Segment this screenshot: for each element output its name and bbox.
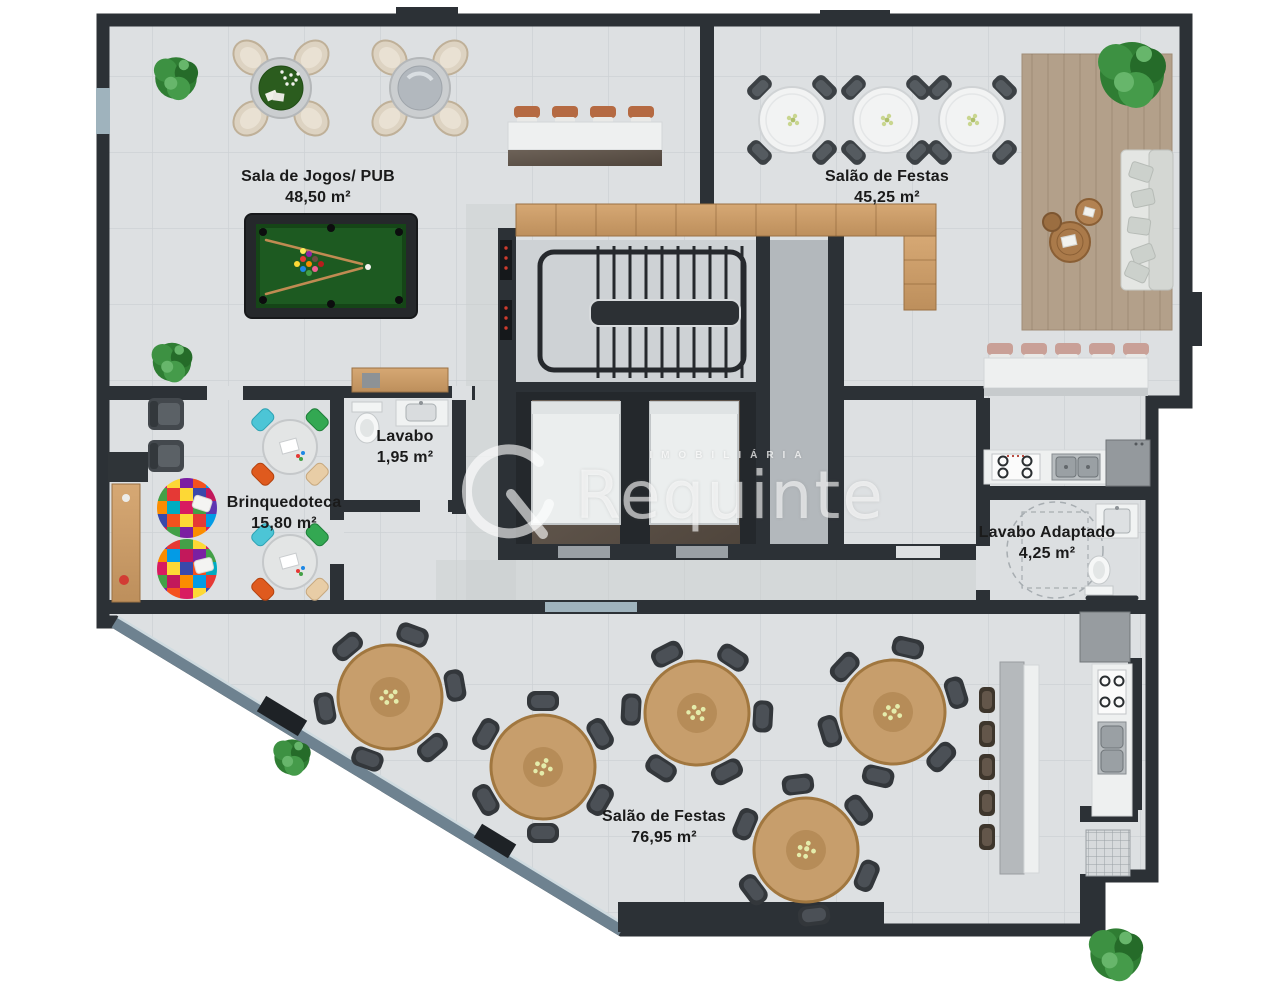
cooktop-icon xyxy=(1098,670,1126,714)
counter-stool xyxy=(979,790,995,816)
armchair-icon xyxy=(148,440,184,472)
elevator-cab-left xyxy=(532,402,620,524)
stair-core xyxy=(500,240,756,382)
room-label-lavabo-adaptado: Lavabo Adaptado 4,25 m² xyxy=(979,522,1116,564)
armchair-icon xyxy=(148,398,184,430)
room-label-lavabo: Lavabo 1,95 m² xyxy=(376,426,433,468)
buffet-counter xyxy=(979,662,1039,874)
counter-stool xyxy=(979,687,995,713)
bar-stool xyxy=(1123,343,1149,360)
room-area: 15,80 m² xyxy=(227,513,342,534)
stair-landing xyxy=(590,300,740,326)
room-area: 45,25 m² xyxy=(825,187,949,208)
hall-floor-south xyxy=(436,560,984,600)
room-area: 4,25 m² xyxy=(979,543,1116,564)
room-name: Salão de Festas xyxy=(825,166,949,187)
bar-stool xyxy=(987,343,1013,360)
pool-table xyxy=(245,214,417,318)
washbasin-icon xyxy=(396,400,448,426)
service-shaft xyxy=(770,240,828,544)
bar-stool xyxy=(1055,343,1081,360)
elevators xyxy=(516,392,756,544)
room-area: 1,95 m² xyxy=(376,447,433,468)
round-table xyxy=(745,73,840,168)
wood-console xyxy=(352,368,448,392)
sink-icon xyxy=(1052,454,1100,480)
counter-stool xyxy=(979,754,995,780)
bar-stool xyxy=(552,106,578,123)
room-label-brinquedoteca: Brinquedoteca 15,80 m² xyxy=(227,492,342,534)
cooktop-icon xyxy=(992,454,1040,480)
room-label-sala-de-jogos: Sala de Jogos/ PUB 48,50 m² xyxy=(241,166,395,208)
bar-stool xyxy=(1021,343,1047,360)
room-name: Salão de Festas xyxy=(602,806,726,827)
round-table xyxy=(839,73,934,168)
room-label-salao-festas-1: Salão de Festas 45,25 m² xyxy=(825,166,949,208)
fridge-icon xyxy=(1080,612,1130,662)
bar-stool xyxy=(628,106,654,123)
floor-plan-canvas: IMOBILIÁRIA Requinte Sala de Jogos/ PUB … xyxy=(0,0,1280,992)
room-name: Lavabo xyxy=(376,426,433,447)
fridge-icon xyxy=(1106,440,1150,486)
sink-icon xyxy=(1098,722,1126,774)
cabinet xyxy=(108,452,148,482)
room-name: Lavabo Adaptado xyxy=(979,522,1116,543)
room-area: 48,50 m² xyxy=(241,187,395,208)
room-area: 76,95 m² xyxy=(602,827,726,848)
counter-stool xyxy=(979,824,995,850)
room-name: Brinquedoteca xyxy=(227,492,342,513)
bar-stool xyxy=(590,106,616,123)
floor-drain-grid xyxy=(1086,830,1130,876)
round-table xyxy=(925,73,1020,168)
bar-stool xyxy=(514,106,540,123)
plant-icon xyxy=(1089,928,1143,981)
elevator-cab-right xyxy=(650,402,738,524)
lounge-sofa xyxy=(1121,150,1173,290)
counter-stool xyxy=(979,721,995,747)
plant-icon xyxy=(273,739,310,775)
bar-stool xyxy=(1089,343,1115,360)
toy-bench xyxy=(112,484,140,602)
room-name: Sala de Jogos/ PUB xyxy=(241,166,395,187)
party-bar xyxy=(984,343,1149,396)
room-label-salao-festas-2: Salão de Festas 76,95 m² xyxy=(602,806,726,848)
